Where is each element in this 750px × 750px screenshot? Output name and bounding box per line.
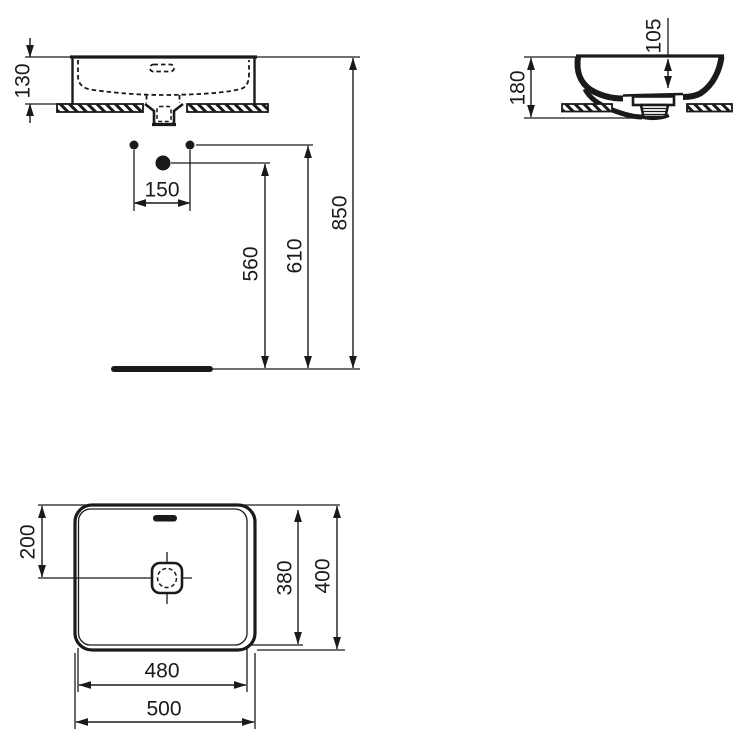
counter-hatch-right: [187, 104, 268, 112]
dim-400-label: 400: [313, 558, 334, 593]
dim-380-label: 380: [275, 560, 296, 595]
side-view: [524, 18, 732, 119]
dim-200-label: 200: [18, 524, 39, 559]
dim-610-label: 610: [285, 238, 306, 273]
dim-500-label: 500: [146, 699, 181, 720]
dim-hole-spacing-label: 150: [144, 180, 179, 201]
side-counter-hatch-right: [687, 104, 732, 112]
dim-basin-height-label: 130: [13, 63, 34, 98]
fixing-hole-right-dot: [186, 141, 195, 150]
technical-drawing-canvas: [0, 0, 750, 750]
counter-hatch-left: [57, 104, 143, 112]
waste-outlet-dot: [156, 156, 171, 171]
front-view: [25, 38, 360, 369]
overflow-hidden-line: [150, 65, 174, 72]
technical-drawing: 130 150 560 610 850 180 105 200 380 400 …: [0, 0, 750, 750]
drain-trap-outline: [145, 104, 183, 125]
section-right-wall: [683, 57, 722, 97]
side-counter-hatch-left: [562, 104, 612, 112]
dim-180-label: 180: [508, 70, 529, 105]
plan-drain-outline: [152, 563, 182, 593]
dim-850-label: 850: [330, 195, 351, 230]
plan-overflow-slot: [153, 515, 177, 522]
dim-560-label: 560: [241, 246, 262, 281]
dim-105-label: 105: [644, 18, 665, 53]
dim-480-label: 480: [144, 661, 179, 682]
fixing-hole-left-dot: [130, 141, 139, 150]
plan-view: [38, 505, 345, 729]
